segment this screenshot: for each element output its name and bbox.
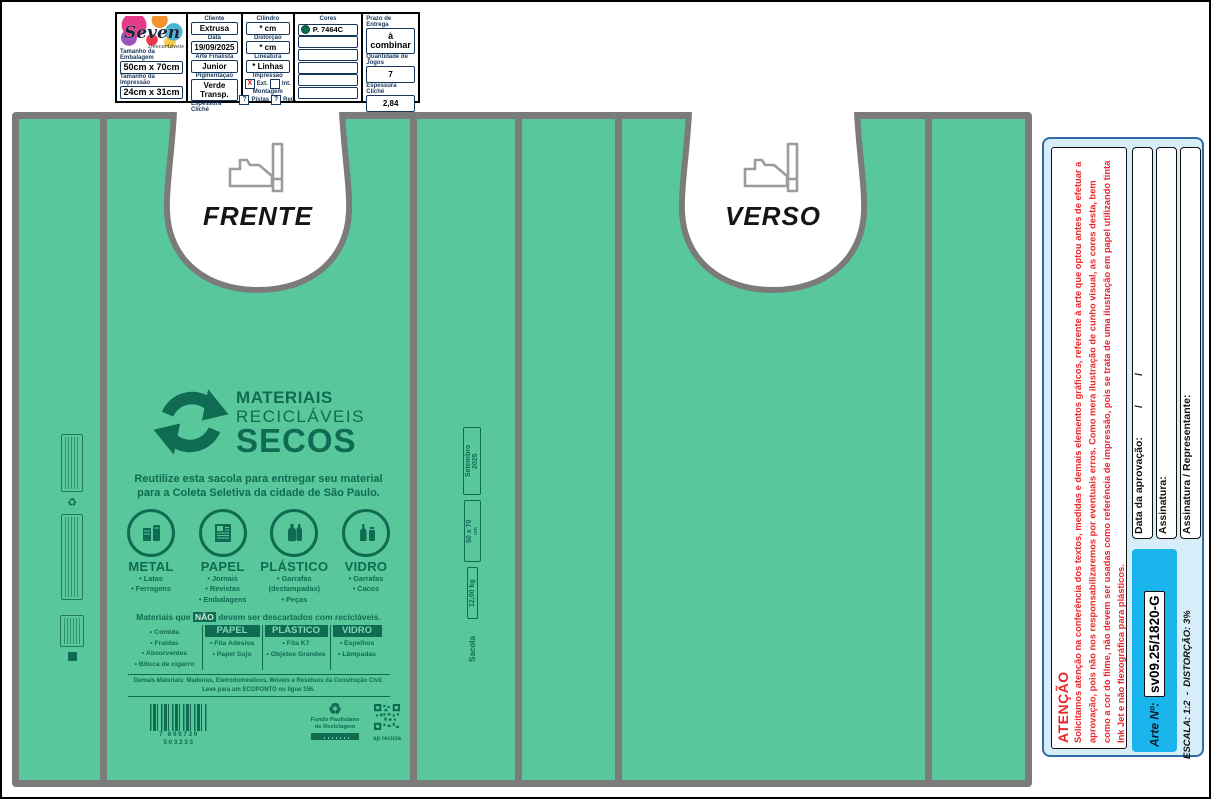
barcode-digits: 7 899739 503233 <box>150 731 208 747</box>
print-proof-sheet: Seven Descartáveis Tamanho da Embalagem … <box>0 0 1211 799</box>
color-row-5 <box>298 74 358 86</box>
ticket-delivery-column: Prazo de Entrega à combinar Quantidade d… <box>361 14 418 101</box>
back-panel-label: VERSO <box>673 201 873 232</box>
other-materials-note: Demais Materiais: Madeiras, Eletrodomést… <box>128 674 390 696</box>
seven-logo-text: Seven <box>124 23 180 43</box>
category-metal: METAL • Latas • Ferragens <box>117 509 185 606</box>
checkbox-int <box>270 79 280 89</box>
die-cut-handle-icon <box>226 142 290 194</box>
right-gusset-labels: Setembro 2025 50 x 70 cm 12,00 kg Sacola <box>457 427 487 674</box>
film-brand-mark <box>68 652 77 661</box>
pantone-swatch <box>301 25 310 34</box>
material-categories: METAL • Latas • Ferragens <box>107 509 410 606</box>
ticket-client-column: Cliente Extrusa Data 19/09/2025 Arte Fin… <box>186 14 241 101</box>
ticket-print-column: Cilindro * cm Distorção * cm Lineatura *… <box>241 14 293 101</box>
pantone-code: P. 7464C <box>313 25 343 34</box>
category-plastico: PLÁSTICO • Garrafas (destampadas) • Peça… <box>260 509 328 606</box>
field-pigmentacao: Pigmentação Verde Transp. <box>191 73 238 101</box>
seven-logo: Seven Descartáveis <box>120 16 184 49</box>
field-cores: Cores <box>298 16 358 22</box>
capacity-label: 12,00 kg <box>467 567 478 619</box>
seven-logo-subtext: Descartáveis <box>148 44 184 50</box>
attention-box: ATENÇÃO Solicitamos atenção na conferênc… <box>1051 147 1127 749</box>
field-prazo-entrega: Prazo de Entrega à combinar <box>366 16 415 54</box>
checkbox-pistas: ? <box>239 95 249 105</box>
signature-field: Assinatura: <box>1156 147 1177 539</box>
field-tamanho-embalagem: Tamanho da Embalagem 50cm x 70cm <box>120 49 183 74</box>
fund-logo-bar <box>311 733 359 740</box>
art-number-value: sv09.25/1820-G <box>1144 591 1165 697</box>
category-vidro: VIDRO • Garrafas • Cacos <box>332 509 400 606</box>
fold-line-1 <box>100 119 107 780</box>
category-papel: PAPEL • Jornais • Revistas • Embalagens <box>189 509 257 606</box>
forbidden-intro: Materiais que NÃO devem ser descartados … <box>107 612 410 622</box>
color-row-4 <box>298 62 358 74</box>
nao-highlight: NÃO <box>193 612 216 622</box>
checkbox-int-label: Int. <box>282 81 291 87</box>
fold-line-3 <box>515 119 522 780</box>
field-lineatura: Lineatura * Linhas <box>246 54 290 73</box>
color-row-2 <box>298 36 358 48</box>
color-row-6 <box>298 87 358 99</box>
field-quantidade-jogos: Quantidade de Jogos 7 <box>366 54 415 83</box>
fold-line-5 <box>925 119 932 780</box>
ticket-colors-column: Cores P. 7464C <box>293 14 361 101</box>
field-arte-finalista: Arte Finalista Junior <box>191 54 238 73</box>
checkbox-ext-label: Ext. <box>257 81 268 87</box>
artwork-title-block: MATERIAIS RECICLÁVEIS SECOS <box>107 381 410 463</box>
metal-icon <box>127 509 175 557</box>
scale-note: ESCALA: 1:2 - DISTORÇÃO: 3% <box>1182 549 1203 759</box>
recycle-logo-icon <box>152 381 230 463</box>
approval-date-field: Data da aprovação: / / <box>1132 147 1153 539</box>
barcode-bars <box>150 704 208 731</box>
front-artwork: MATERIAIS RECICLÁVEIS SECOS Reutilize es… <box>107 381 410 748</box>
production-date-label: Setembro 2025 <box>463 427 481 495</box>
forbidden-general-column: • Comida • Fraldas • Absorventes • Bituc… <box>128 625 202 670</box>
checkbox-ext: X <box>245 79 255 89</box>
vidro-icon <box>342 509 390 557</box>
art-number-box: Arte Nº: sv09.25/1820-G <box>1132 549 1177 752</box>
artwork-tagline: Reutilize esta sacola para entregar seu … <box>107 472 410 501</box>
bag-diagram: FRENTE VERSO <box>12 112 1032 787</box>
fold-line-4 <box>615 119 622 780</box>
artwork-title-line3: SECOS <box>236 426 365 456</box>
job-ticket-form: Seven Descartáveis Tamanho da Embalagem … <box>115 12 420 103</box>
field-data: Data 19/09/2025 <box>191 35 238 54</box>
qr-caption: sp recicla <box>373 735 401 743</box>
bag-dimensions-label: 50 x 70 cm <box>464 500 481 562</box>
small-recycle-icon: ♻ <box>67 497 77 509</box>
left-gusset-microtext: ♻ <box>59 434 85 661</box>
checkbox-pistas-label: Pistas <box>251 97 269 103</box>
attention-body: Solicitamos atenção na conferência dos t… <box>1071 153 1129 743</box>
forbidden-plastico-column: PLÁSTICO • Fita K7 • Objetos Grandes <box>262 625 330 670</box>
field-tamanho-impressao: Tamanho da Impressão 24cm x 31cm <box>120 74 183 99</box>
field-impressao: Impressão X Ext. Int. <box>246 73 290 89</box>
microtext-box-2 <box>61 514 83 600</box>
forbidden-table: • Comida • Fraldas • Absorventes • Bituc… <box>128 625 390 670</box>
approval-panel: ATENÇÃO Solicitamos atenção na conferênc… <box>1042 137 1204 757</box>
microtext-box-1 <box>61 434 83 492</box>
qr-code-image <box>374 704 400 730</box>
plastico-icon <box>270 509 318 557</box>
die-cut-handle-icon <box>741 142 805 194</box>
forbidden-papel-column: PAPEL • Fita Adesiva • Papel Sujo <box>202 625 262 670</box>
representative-signature-field: Assinatura / Representante: <box>1180 147 1201 539</box>
color-row-3 <box>298 49 358 61</box>
fund-recycle-icon: ♻ <box>303 702 367 717</box>
field-espessura-cliche-2: Espessura Cliché 2,84 <box>366 83 415 112</box>
field-cliente: Cliente Extrusa <box>191 16 238 35</box>
sacola-label: Sacola <box>467 624 478 674</box>
forbidden-vidro-column: VIDRO • Espelhos • Lâmpadas <box>330 625 384 670</box>
checkbox-rep: ? <box>271 95 281 105</box>
field-distorcao: Distorção * cm <box>246 35 290 54</box>
front-panel-label: FRENTE <box>158 201 358 232</box>
attention-title: ATENÇÃO <box>1055 153 1071 743</box>
color-row-1: P. 7464C <box>298 24 358 36</box>
artwork-title-line1: MATERIAIS <box>236 389 365 407</box>
fold-line-2 <box>410 119 417 780</box>
certification-logos <box>60 615 84 647</box>
fund-logo: ♻ Fundo Paulistano de Reciclagem <box>303 702 367 740</box>
qr-code: sp recicla <box>373 704 401 743</box>
field-cilindro: Cilindro * cm <box>246 16 290 35</box>
papel-icon <box>199 509 247 557</box>
ticket-logo-column: Seven Descartáveis Tamanho da Embalagem … <box>117 14 186 101</box>
art-number-label: Arte Nº: <box>1148 703 1162 747</box>
artwork-bottom-row: 7 899739 503233 ♻ Fundo Paulistano de Re… <box>107 702 410 748</box>
field-montagem: Montagem ? Pistas ? Rep. <box>246 89 290 105</box>
barcode: 7 899739 503233 <box>150 704 208 747</box>
